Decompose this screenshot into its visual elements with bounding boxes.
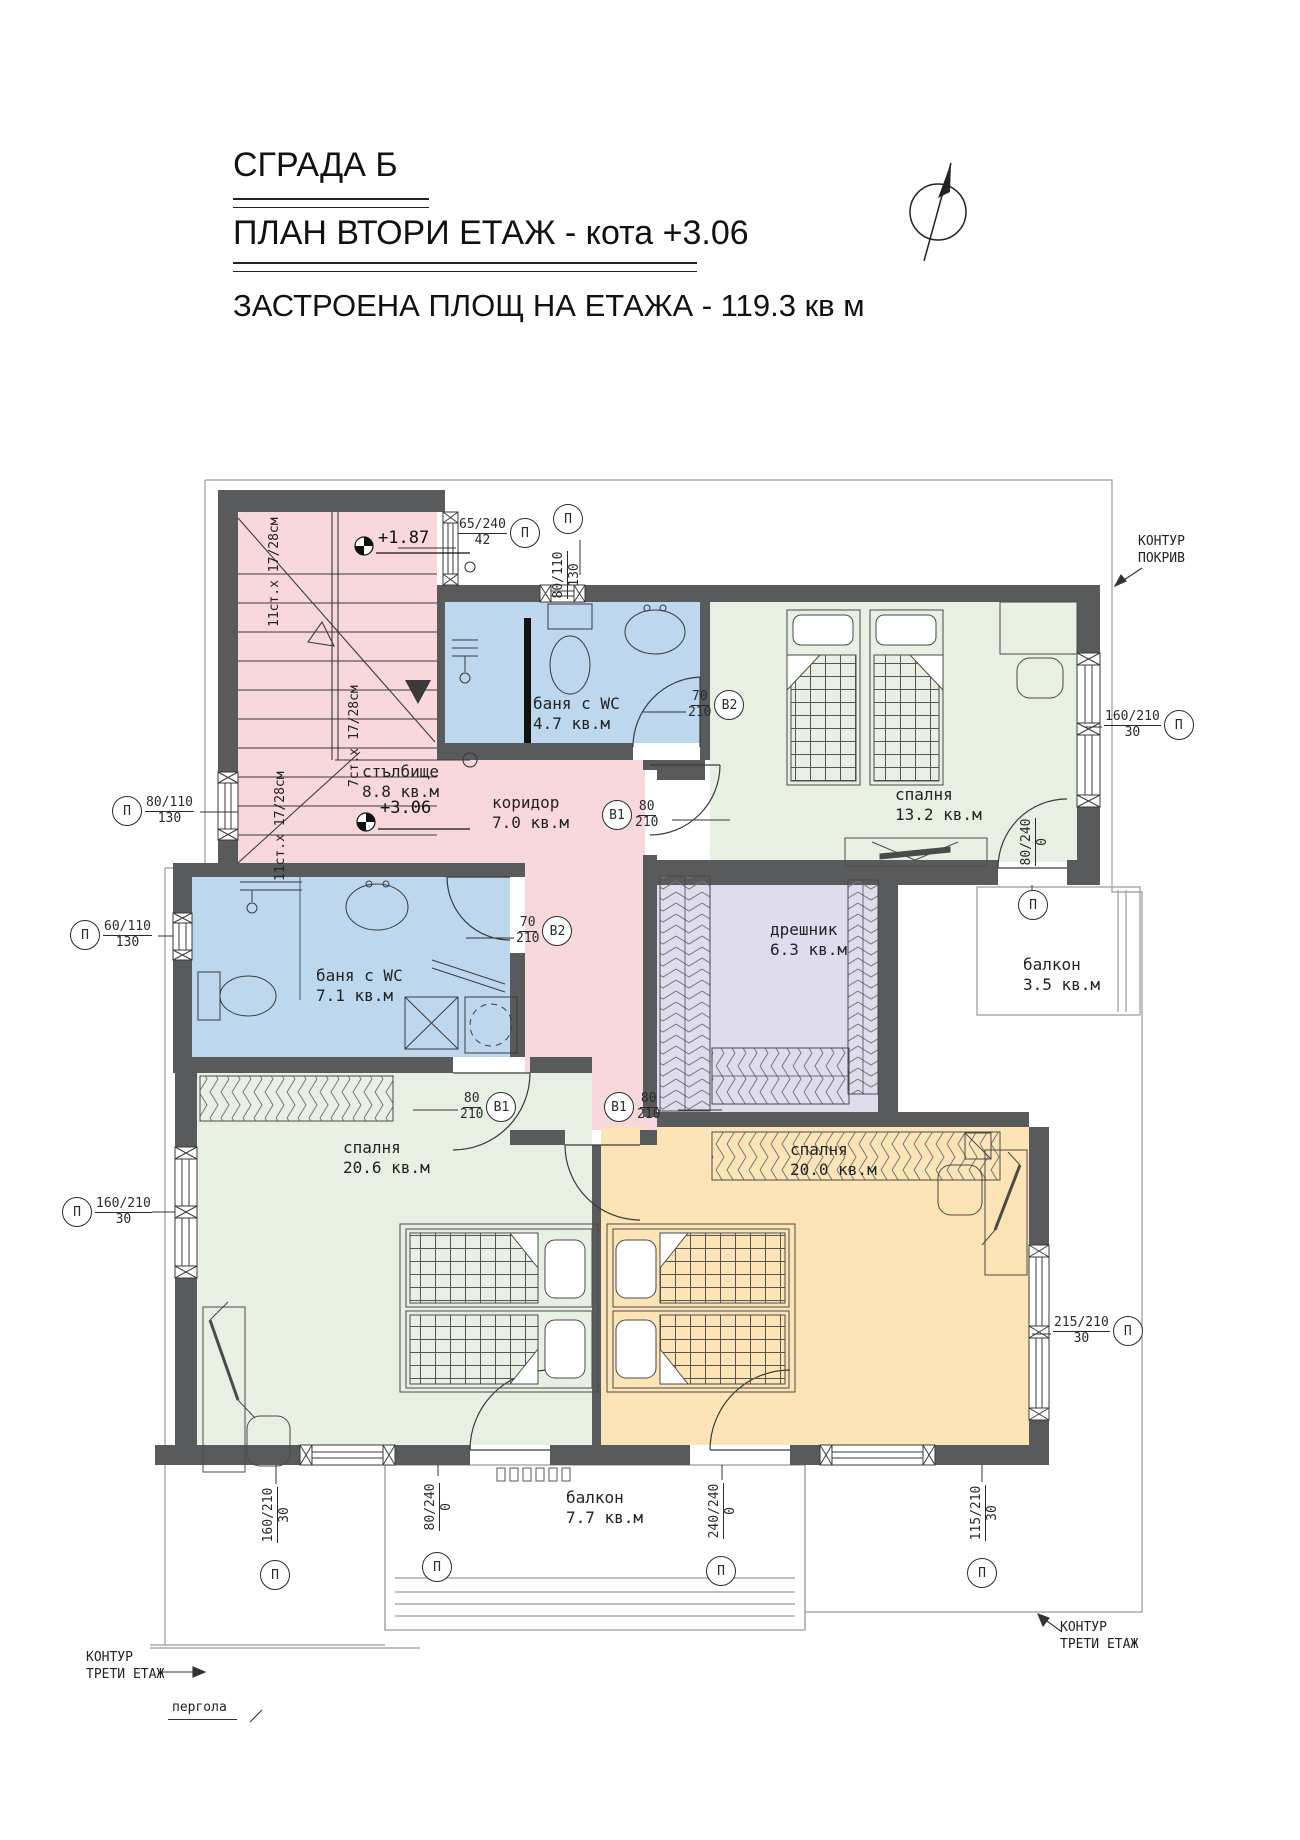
room-label-balcony2: балкон7.7 кв.м bbox=[566, 1488, 643, 1528]
dim-window-65-240: 65/24042 П bbox=[458, 518, 540, 549]
dim-bubble: П bbox=[260, 1560, 290, 1590]
dim-window-160-210-left: П 160/21030 bbox=[62, 1197, 152, 1228]
dim-window-60-110: П 60/110130 bbox=[70, 920, 152, 951]
sheet-title-plan: ПЛАН ВТОРИ ЕТАЖ - кота +3.06 bbox=[233, 214, 749, 253]
sheet-title-area: ЗАСТРОЕНА ПЛОЩ НА ЕТАЖА - 119.3 кв м bbox=[233, 288, 865, 324]
room-label-bath1: баня с WC4.7 кв.м bbox=[533, 694, 620, 734]
dim-door-bedroom2: 80210 В1 bbox=[460, 1092, 516, 1123]
dim-window-80-110-left: П 80/110130 bbox=[112, 796, 194, 827]
dim-bubble: П bbox=[422, 1552, 452, 1582]
note-third-floor-contour-left: КОНТУР ТРЕТИ ЕТАЖ bbox=[86, 1650, 164, 1684]
dim-bubble: П bbox=[967, 1558, 997, 1588]
level-mark-floor: +3.06 bbox=[380, 798, 431, 818]
dim-window-115-210: 115/21030 bbox=[970, 1478, 1001, 1548]
dim-balcony2-door-80: 80/2400 bbox=[424, 1472, 455, 1542]
room-label-staircase: стълбище8.8 кв.м bbox=[362, 762, 439, 802]
stair-note-lower: 11ст.х 17/28см bbox=[273, 771, 288, 881]
room-label-closet: дрешник6.3 кв.м bbox=[770, 920, 847, 960]
room-label-bedroom1: спалня13.2 кв.м bbox=[895, 785, 982, 825]
dim-bubble: П bbox=[1018, 890, 1048, 920]
room-label-bedroom2: спалня20.6 кв.м bbox=[343, 1138, 430, 1178]
title-underline bbox=[233, 262, 697, 264]
room-label-bedroom3: спалня20.0 кв.м bbox=[790, 1140, 877, 1180]
north-arrow-icon bbox=[910, 163, 966, 261]
dim-bubble: П bbox=[706, 1556, 736, 1586]
title-underline bbox=[233, 198, 429, 200]
note-third-floor-contour-right: КОНТУР ТРЕТИ ЕТАЖ bbox=[1060, 1620, 1138, 1654]
note-roof-contour: КОНТУР ПОКРИВ bbox=[1138, 534, 1185, 568]
note-pergola: пергола bbox=[168, 1700, 237, 1720]
stair-note-mid: 7ст.х 17/28см bbox=[347, 685, 362, 787]
dim-door-bath2: 70210 В2 bbox=[516, 916, 572, 947]
room-label-bath2: баня с WC7.1 кв.м bbox=[316, 966, 403, 1006]
dim-door-bedroom1: В1 80210 bbox=[602, 800, 658, 831]
floor-plan-sheet: СГРАДА Б ПЛАН ВТОРИ ЕТАЖ - кота +3.06 ЗА… bbox=[0, 0, 1300, 1840]
sheet-title-building: СГРАДА Б bbox=[233, 146, 398, 185]
stair-note-upper: 11ст.х 17/28см bbox=[267, 517, 282, 627]
floor-plan-drawing bbox=[0, 0, 1300, 1840]
room-label-corridor: коридор7.0 кв.м bbox=[492, 793, 569, 833]
dim-window-160-210-bottom: 160/21030 bbox=[262, 1480, 293, 1550]
title-underline bbox=[233, 207, 429, 208]
dim-window-215-210: 215/21030 П bbox=[1053, 1316, 1143, 1347]
dim-bubble: П bbox=[553, 504, 583, 534]
dim-door-bath1: 70210 В2 bbox=[688, 690, 744, 721]
balcony-railing-ticks bbox=[497, 1468, 570, 1481]
dim-door-bedroom3: В1 80210 bbox=[604, 1092, 660, 1123]
title-underline bbox=[233, 271, 697, 272]
room-label-balcony1: балкон3.5 кв.м bbox=[1023, 955, 1100, 995]
dim-balcony1-door: 80/2400 bbox=[1020, 807, 1051, 877]
level-mark-landing: +1.87 bbox=[378, 528, 429, 548]
dim-window-80-110-top: 80/110130 bbox=[552, 540, 583, 610]
dim-window-160-210-right: 160/21030 П bbox=[1104, 710, 1194, 741]
dim-balcony2-door-240: 240/2400 bbox=[708, 1476, 739, 1546]
